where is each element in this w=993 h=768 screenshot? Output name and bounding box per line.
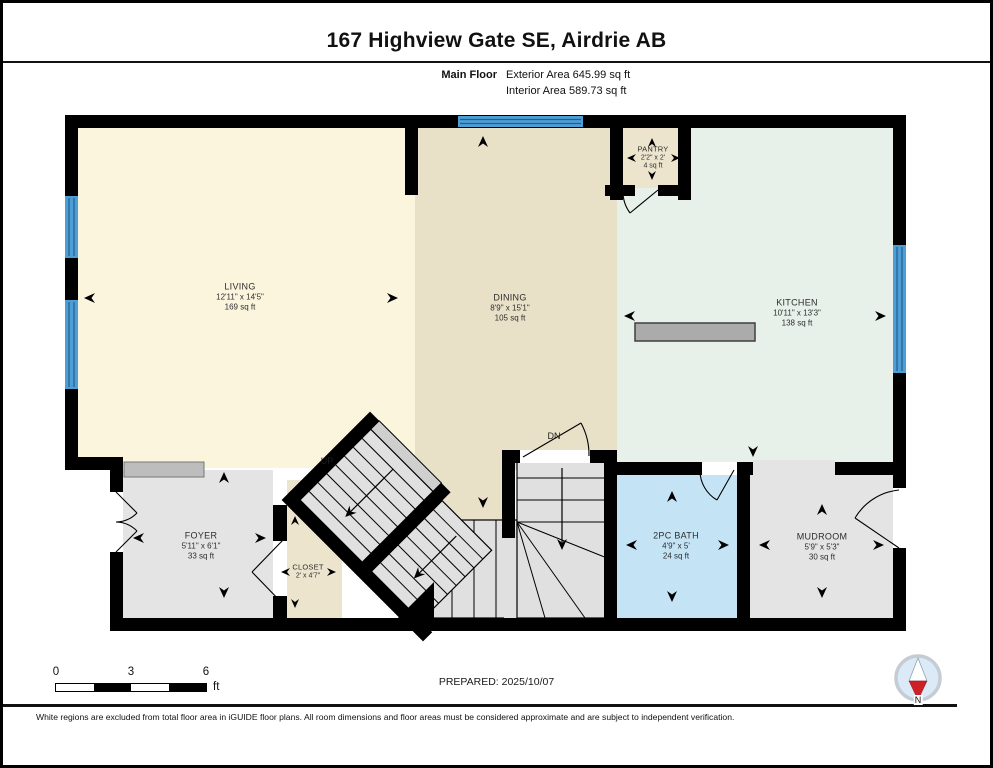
window-living-upper xyxy=(65,196,78,258)
wall-living-dining-stub xyxy=(405,115,418,195)
room-label-kitchen: KITCHEN 10'11" x 13'3" 138 sq ft xyxy=(773,297,821,329)
wall-bath-mudroom xyxy=(737,475,750,631)
room-name: 2PC BATH xyxy=(653,530,699,541)
room-area: 30 sq ft xyxy=(797,552,848,563)
wall-dn-stub-right xyxy=(590,450,606,463)
back-door-opening xyxy=(893,488,906,548)
prepared-date: PREPARED: 2025/10/07 xyxy=(0,676,993,688)
wall-closet-top-stub xyxy=(273,505,287,541)
room-dimensions: 5'11" x 6'1" xyxy=(182,541,221,552)
dn-door-opening xyxy=(520,450,590,463)
room-label-mudroom: MUDROOM 5'9" x 5'3" 30 sq ft xyxy=(797,531,848,563)
window-living-lower xyxy=(65,300,78,389)
room-area: 24 sq ft xyxy=(653,551,699,562)
compass-north-label: N xyxy=(914,695,923,705)
kitchen-counter xyxy=(635,323,755,341)
wall-kitchen-bottom-c xyxy=(835,462,906,475)
room-dimensions: 10'11" x 13'3" xyxy=(773,308,821,319)
room-name: MUDROOM xyxy=(797,531,848,542)
disclaimer-text: White regions are excluded from total fl… xyxy=(36,712,966,722)
room-label-closet: CLOSET 2' x 4'7" xyxy=(292,564,323,581)
page-title: 167 Highview Gate SE, Airdrie AB xyxy=(0,29,993,53)
wall-pantry-bottom-right xyxy=(658,185,691,196)
wall-bottom xyxy=(110,618,906,631)
wall-closet-bottom-stub xyxy=(273,596,287,620)
room-label-living: LIVING 12'11" x 14'5" 169 sq ft xyxy=(216,281,264,313)
room-area: 138 sq ft xyxy=(773,318,821,329)
room-label-foyer: FOYER 5'11" x 6'1" 33 sq ft xyxy=(182,530,221,562)
room-dimensions: 2' x 4'7" xyxy=(292,572,323,581)
wall-kitchen-bottom-a xyxy=(610,462,702,475)
wall-kitchen-bottom-b xyxy=(737,462,753,475)
room-name: KITCHEN xyxy=(773,297,821,308)
room-label-dining: DINING 8'9" x 15'1" 105 sq ft xyxy=(490,292,529,324)
floor-plan xyxy=(0,0,993,768)
stair-dn-label: DN xyxy=(548,431,561,441)
room-label-pantry: PANTRY 2'2" x 2' 4 sq ft xyxy=(638,145,669,171)
room-dimensions: 2'2" x 2' xyxy=(638,154,669,163)
exterior-area: Exterior Area 645.99 sq ft xyxy=(506,69,630,81)
room-name: DINING xyxy=(490,292,529,303)
room-name: LIVING xyxy=(216,281,264,292)
wall-dn-left xyxy=(502,450,515,538)
room-area: 169 sq ft xyxy=(216,302,264,313)
wall-pantry-bottom-left xyxy=(605,185,635,196)
room-dimensions: 5'9" x 5'3" xyxy=(797,542,848,553)
room-name: FOYER xyxy=(182,530,221,541)
room-area: 4 sq ft xyxy=(638,162,669,171)
foyer-mat xyxy=(124,462,204,477)
room-label-bath: 2PC BATH 4'9" x 5' 24 sq ft xyxy=(653,530,699,562)
mudroom-opening xyxy=(753,460,835,478)
footer-divider xyxy=(3,704,957,707)
header-divider xyxy=(3,61,990,63)
wall-bath-stair xyxy=(604,450,617,631)
room-name: CLOSET xyxy=(292,564,323,573)
room-area: 33 sq ft xyxy=(182,551,221,562)
window-dining-top xyxy=(458,116,583,127)
wall-left xyxy=(65,115,78,470)
room-dimensions: 12'11" x 14'5" xyxy=(216,292,264,303)
interior-area: Interior Area 589.73 sq ft xyxy=(506,85,626,97)
floor-name: Main Floor xyxy=(315,69,497,81)
room-name: PANTRY xyxy=(638,145,669,154)
stair-up-label: UP xyxy=(321,456,334,466)
room-dimensions: 4'9" x 5' xyxy=(653,541,699,552)
window-kitchen-right xyxy=(893,245,906,373)
room-area: 105 sq ft xyxy=(490,313,529,324)
room-dimensions: 8'9" x 15'1" xyxy=(490,303,529,314)
stair-filler xyxy=(504,538,517,620)
